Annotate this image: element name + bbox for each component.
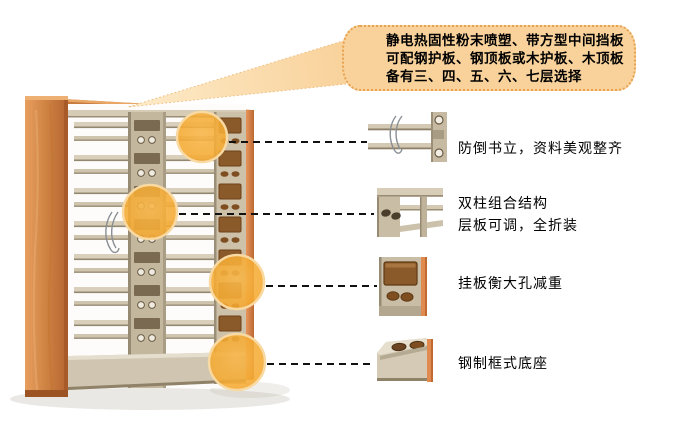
diagram-stage: 静电热固性粉末喷塑、带方型中间挡板 可配钢护板、钢顶板或木护板、木顶板 备有三、… <box>0 0 695 428</box>
feature-callout-bubble: 静电热固性粉末喷塑、带方型中间挡板 可配钢护板、钢顶板或木护板、木顶板 备有三、… <box>342 25 636 91</box>
double-column-structure-detail <box>377 188 443 237</box>
annotation-label-adjustable-shelf: 层板可调，全折装 <box>458 217 578 233</box>
highlight-circle-3 <box>210 255 264 309</box>
annotation-label-column-structure: 双柱组合结构 <box>458 195 548 211</box>
highlight-circle-2 <box>123 185 177 239</box>
callout-line: 可配钢护板、钢顶板或木护板、木顶板 <box>386 50 624 68</box>
annotation-label-hanging-plate: 挂板衡大孔减重 <box>458 275 563 291</box>
annotation-label-book-support: 防倒书立，资料美观整齐 <box>458 140 623 156</box>
highlight-circle-1 <box>177 112 227 162</box>
callout-tail <box>128 40 346 107</box>
highlight-circle-4 <box>209 334 265 390</box>
steel-frame-base-detail <box>377 338 433 382</box>
left-wood-panel <box>25 96 68 397</box>
middle-column <box>128 112 166 388</box>
callout-line: 静电热固性粉末喷塑、带方型中间挡板 <box>386 32 624 50</box>
product-diagram-page: { "page": { "title": "钢制双柱书架产品细节图", "typ… <box>0 0 695 428</box>
callout-line: 备有三、四、五、六、七层选择 <box>386 68 624 86</box>
hanging-plate-holes-detail <box>379 257 427 316</box>
annotation-label-base: 钢制框式底座 <box>458 355 548 371</box>
book-support-detail <box>368 112 447 162</box>
